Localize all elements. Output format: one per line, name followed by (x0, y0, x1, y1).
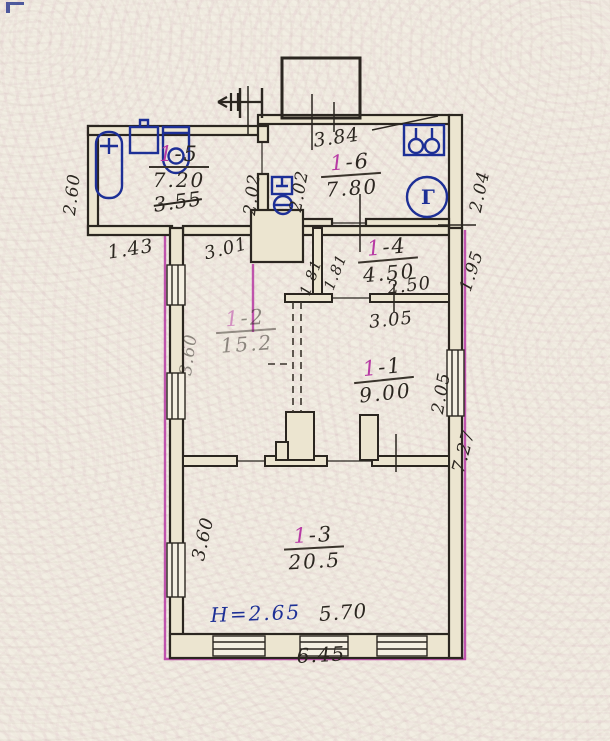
stove-mass-ledge (276, 442, 288, 460)
room-1-3-number: 1-3 (283, 521, 344, 550)
dim-outer-bottom: 6.45 (296, 641, 346, 668)
gas-meter-letter: Г (421, 185, 436, 209)
chimney-mass (360, 415, 378, 460)
room-1-1-label: 1-1 9.00 (336, 350, 433, 409)
bathtub-icon (96, 132, 122, 198)
room-1-2-label: 1-2 15.2 (198, 303, 293, 359)
window-left-3 (167, 543, 185, 597)
wall-tambour-block (251, 210, 303, 262)
floor-plan-drawing (0, 0, 610, 741)
room-1-5-number: 1-5 (149, 142, 209, 168)
room-1-5-label: 1-5 7.20 (133, 142, 225, 192)
dim-room13-bottom: 5.70 (318, 599, 368, 626)
window-left-1 (167, 265, 185, 305)
stove-mass (286, 412, 314, 460)
wall-room3-top-a (183, 456, 237, 466)
window-left-2 (167, 373, 185, 419)
ceiling-height-note: Н=2.65 (210, 600, 302, 627)
room-1-3-label: 1-3 20.5 (267, 521, 361, 576)
floor-plan-page: 1-5 7.20 3.55 1-6 7.80 1-4 4.50 1-2 15.2… (0, 0, 610, 741)
window-bottom-1 (213, 636, 265, 656)
wall-room3-top-c (372, 456, 449, 466)
wall-kitchen-right (449, 115, 462, 228)
wall-bathroom-bottom (88, 226, 172, 235)
stove-icon (404, 125, 444, 155)
room-1-6-label: 1-6 7.80 (303, 147, 398, 203)
porch (282, 58, 360, 118)
wall-tambour-upper (258, 126, 268, 142)
room-1-3-area: 20.5 (268, 547, 361, 576)
window-bottom-3 (377, 636, 427, 656)
